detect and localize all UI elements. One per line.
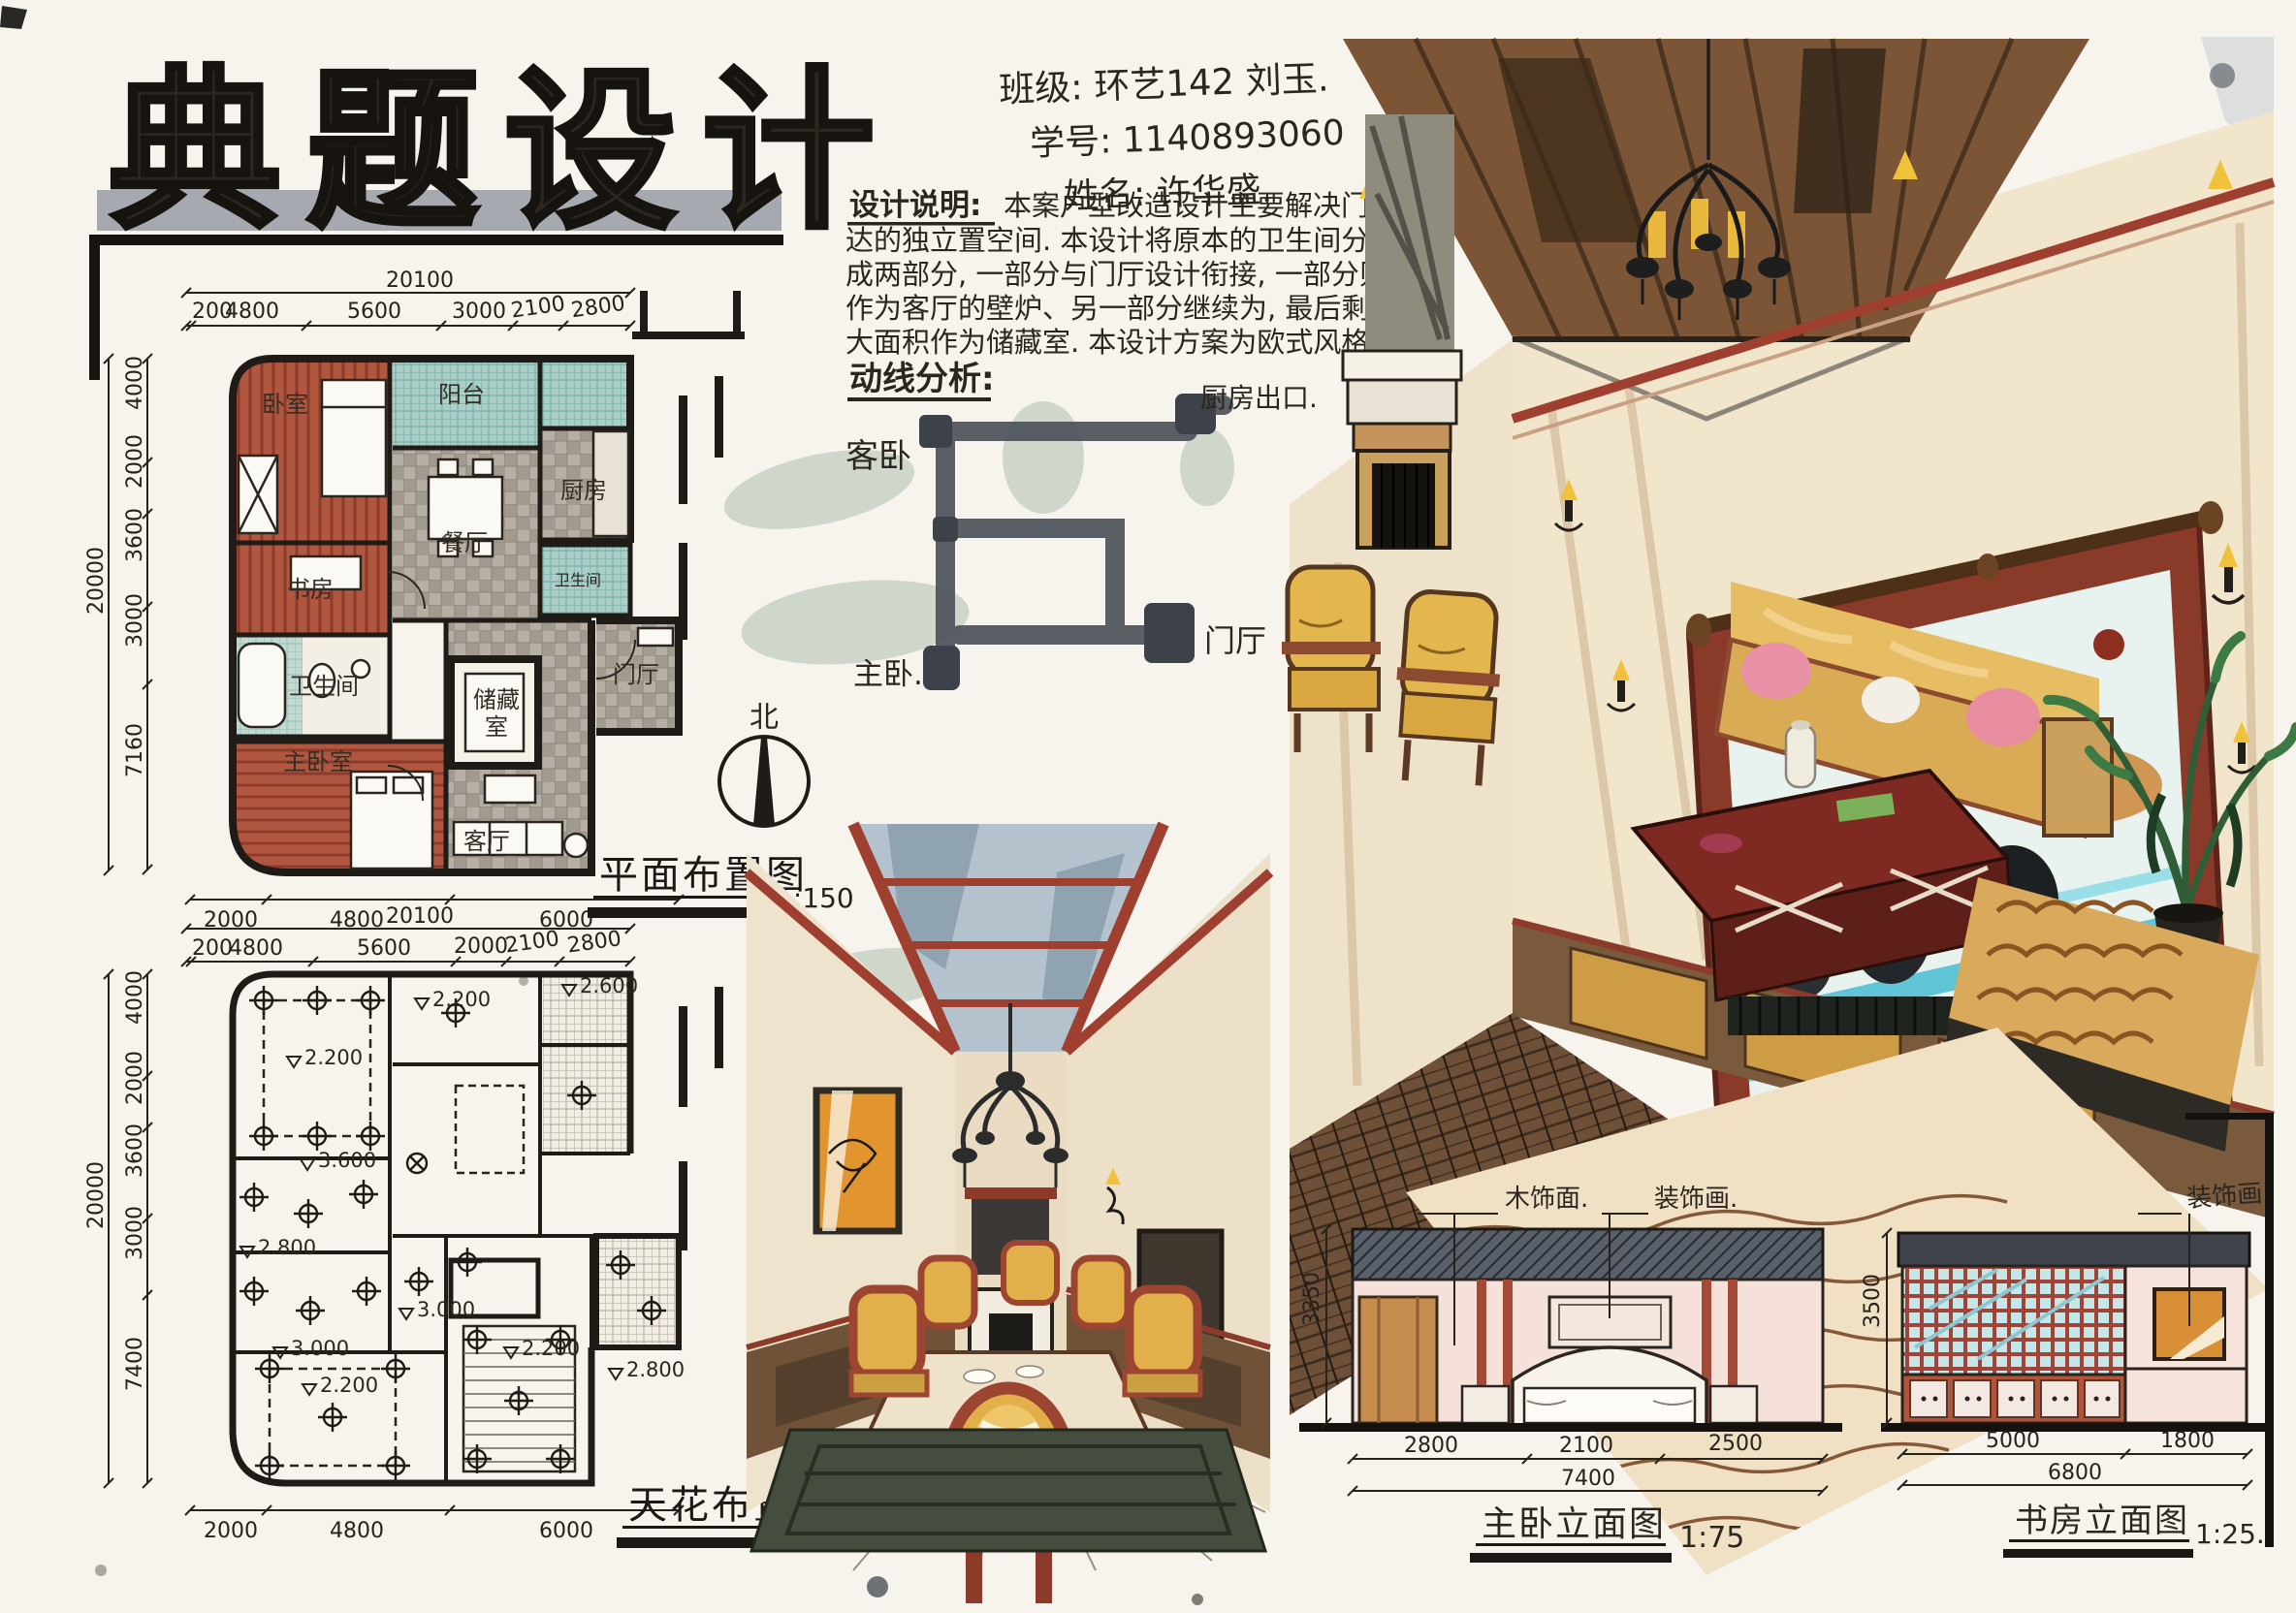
- floor-plan-dims-top: 20100 200 4800 5600 3000 2100 2800: [181, 269, 635, 331]
- dim-value: 7160: [123, 723, 147, 777]
- elevation-master-title-text: 主卧立面图: [1482, 1504, 1666, 1544]
- north-arrow: 北: [719, 701, 809, 826]
- logo-block: 典题设计: [89, 51, 900, 380]
- dim-value: 5600: [347, 300, 401, 324]
- dim-value: 2100: [1559, 1434, 1613, 1458]
- dim-value: 6000: [539, 1519, 593, 1543]
- dining-left-artwork: [816, 1091, 899, 1231]
- design-notes-line3: 成两部分, 一部分与门厅设计衔接, 一部分则: [845, 258, 1387, 291]
- dim-value: 2100: [509, 292, 566, 324]
- floor-plan: 卧室 阳台 餐厅 厨房 书房 卫生间 卫生间 主卧室 储藏 室 客厅 门厅 20…: [84, 269, 854, 933]
- floor-plan-room-bath-top: [540, 359, 630, 427]
- elevation-master-label-wood: 木饰面.: [1505, 1185, 1588, 1214]
- room-label-bath: 卫生间: [289, 673, 359, 700]
- dim-value: 3350: [1300, 1272, 1324, 1326]
- dim-value: 2800: [1404, 1434, 1458, 1458]
- height-label: 2.600: [580, 974, 638, 997]
- height-label: 2.200: [432, 988, 491, 1011]
- room-label-balcony: 阳台: [438, 381, 485, 408]
- logo-underline: [89, 235, 783, 245]
- room-label-storage-1: 储藏: [473, 686, 520, 713]
- room-label-study: 书房: [287, 576, 334, 603]
- elevation-study-title: 书房立面图 1:25.: [2003, 1502, 2265, 1558]
- floor-plan-dims-left: 20000 4000 2000 3600 3000 7160: [84, 354, 152, 875]
- design-notes-heading: 设计说明:: [849, 188, 981, 223]
- elevation-master-curtain-box: [1353, 1229, 1823, 1280]
- elevation-master-nightstand-right: [1710, 1386, 1757, 1423]
- dim-value: 3000: [452, 300, 506, 324]
- dim-value: 3500: [1861, 1274, 1885, 1328]
- elevation-study-soffit: [1898, 1233, 2249, 1266]
- dim-value: 2000: [204, 1519, 258, 1543]
- design-notes-line5: 大面积作为储藏室. 本设计方案为欧式风格.: [845, 326, 1379, 359]
- ceiling-plan-context-walls: [679, 987, 723, 1250]
- dim-value: 4800: [229, 936, 283, 961]
- dim-value: 1800: [2160, 1429, 2215, 1453]
- north-needle: [753, 738, 775, 825]
- elevation-study-scale: 1:25.: [2195, 1518, 2265, 1550]
- circulation-heading: 动线分析:: [849, 360, 995, 398]
- elevation-master-label-art: 装饰画.: [1654, 1185, 1738, 1214]
- elevation-study-label-art: 装饰画.: [2185, 1179, 2271, 1214]
- height-label: 2.200: [522, 1337, 580, 1360]
- dim-value: 200: [192, 936, 233, 961]
- elevation-master-wardrobe: [1359, 1297, 1437, 1423]
- dim-value: 4800: [330, 1519, 384, 1543]
- design-notes-line4: 作为客厅的壁炉、另一部分继续为, 最后剩下的: [845, 292, 1425, 325]
- ceiling-grid-area-2: [599, 1239, 677, 1344]
- elevation-study-bookshelf: [1902, 1266, 2125, 1375]
- design-notes: 设计说明: 本案户型改造设计主要解决门厅到 达的独立置空间. 本设计将原本的卫生…: [845, 188, 1425, 359]
- room-label-bath-small: 卫生间: [555, 571, 601, 589]
- dim-value: 4000: [123, 356, 147, 410]
- elevation-master-scale: 1:75: [1679, 1521, 1744, 1555]
- dim-value: 5600: [357, 936, 411, 961]
- dim-value: 2000: [123, 434, 147, 489]
- dim-value: 2500: [1708, 1432, 1763, 1456]
- elevation-study-title-text: 书房立面图: [2015, 1502, 2189, 1540]
- room-label-dining: 餐厅: [441, 529, 488, 556]
- room-label-bedroom: 卧室: [262, 391, 308, 418]
- circulation-kitchen-exit-label: 厨房出口.: [1200, 382, 1318, 414]
- room-label-living: 客厅: [463, 828, 510, 855]
- height-label: 3.000: [417, 1298, 475, 1321]
- dining-perspective: [747, 824, 1270, 1603]
- dim-value: 2000: [123, 1051, 147, 1105]
- dim-value: 4000: [123, 970, 147, 1025]
- dim-value: 7400: [1561, 1467, 1615, 1491]
- dim-value: 5000: [1986, 1429, 2040, 1453]
- room-label-kitchen: 厨房: [560, 477, 607, 504]
- dim-value: 20000: [84, 547, 109, 615]
- dim-value: 20100: [386, 269, 454, 293]
- elevation-master-ground: [1299, 1423, 1842, 1432]
- floor-plan-context-walls: [632, 291, 745, 640]
- presentation-board: 典题设计 班级: 环艺142 刘玉. 学号: 1140893060 姓名: 许华…: [0, 0, 2296, 1613]
- height-label: 2.800: [258, 1236, 316, 1259]
- north-label: 北: [749, 701, 779, 735]
- height-label: 3.000: [291, 1337, 349, 1360]
- circulation-entry-label: 门厅: [1204, 622, 1266, 659]
- elevation-master-nightstand-left: [1462, 1386, 1509, 1423]
- height-label: 2.200: [320, 1374, 378, 1397]
- dim-value: 3000: [123, 1206, 147, 1260]
- dim-value: 7400: [123, 1337, 147, 1391]
- dim-value: 2000: [454, 934, 508, 959]
- dim-value: 3000: [123, 593, 147, 648]
- dim-value: 3600: [123, 1123, 147, 1178]
- dim-value: 20000: [84, 1161, 109, 1229]
- circulation-heading-underline: [847, 397, 991, 401]
- dim-value: 2100: [503, 927, 560, 959]
- floor-plan-title: 平面布置图 1:150: [588, 853, 854, 918]
- dim-value: 2800: [569, 292, 626, 324]
- dim-value: 4800: [225, 300, 279, 324]
- circulation-master-label: 主卧.: [853, 657, 923, 692]
- logo-text: 典题设计: [109, 51, 900, 252]
- room-label-storage-2: 室: [485, 713, 508, 741]
- height-label: 2.800: [626, 1358, 685, 1381]
- dim-value: 6800: [2048, 1461, 2102, 1485]
- ceiling-plan-dims-bottom: 2000 4800 6000: [185, 1505, 684, 1543]
- ceiling-plan-dims-left: 20000 4000 2000 3600 3000 7400: [84, 969, 152, 1488]
- elevation-study-cabinet-doors: [1910, 1380, 2120, 1417]
- elevation-study-ground: [1881, 1423, 2274, 1432]
- height-label: 3.600: [318, 1149, 376, 1172]
- dining-rug: [751, 1430, 1265, 1551]
- ceiling-grid-area-1: [543, 977, 628, 1152]
- circulation-guest-bedroom-label: 客卧: [845, 437, 911, 476]
- design-notes-line2: 达的独立置空间. 本设计将原本的卫生间分: [845, 224, 1369, 257]
- student-id: 学号: 1140893060: [1030, 113, 1346, 164]
- logo-left-bar: [89, 235, 100, 380]
- room-label-master: 主卧室: [283, 748, 353, 775]
- room-label-entry: 门厅: [613, 661, 659, 688]
- student-class: 班级: 环艺142 刘玉.: [999, 57, 1330, 111]
- dim-value: 20100: [386, 904, 454, 929]
- height-label: 2.200: [304, 1046, 363, 1069]
- dim-value: 3600: [123, 508, 147, 562]
- elevation-master-bed-blanket: [1524, 1388, 1695, 1423]
- elevation-study: 装饰画. 3500 5000 1800 6800 书房立面图 1:25.: [1861, 1179, 2274, 1558]
